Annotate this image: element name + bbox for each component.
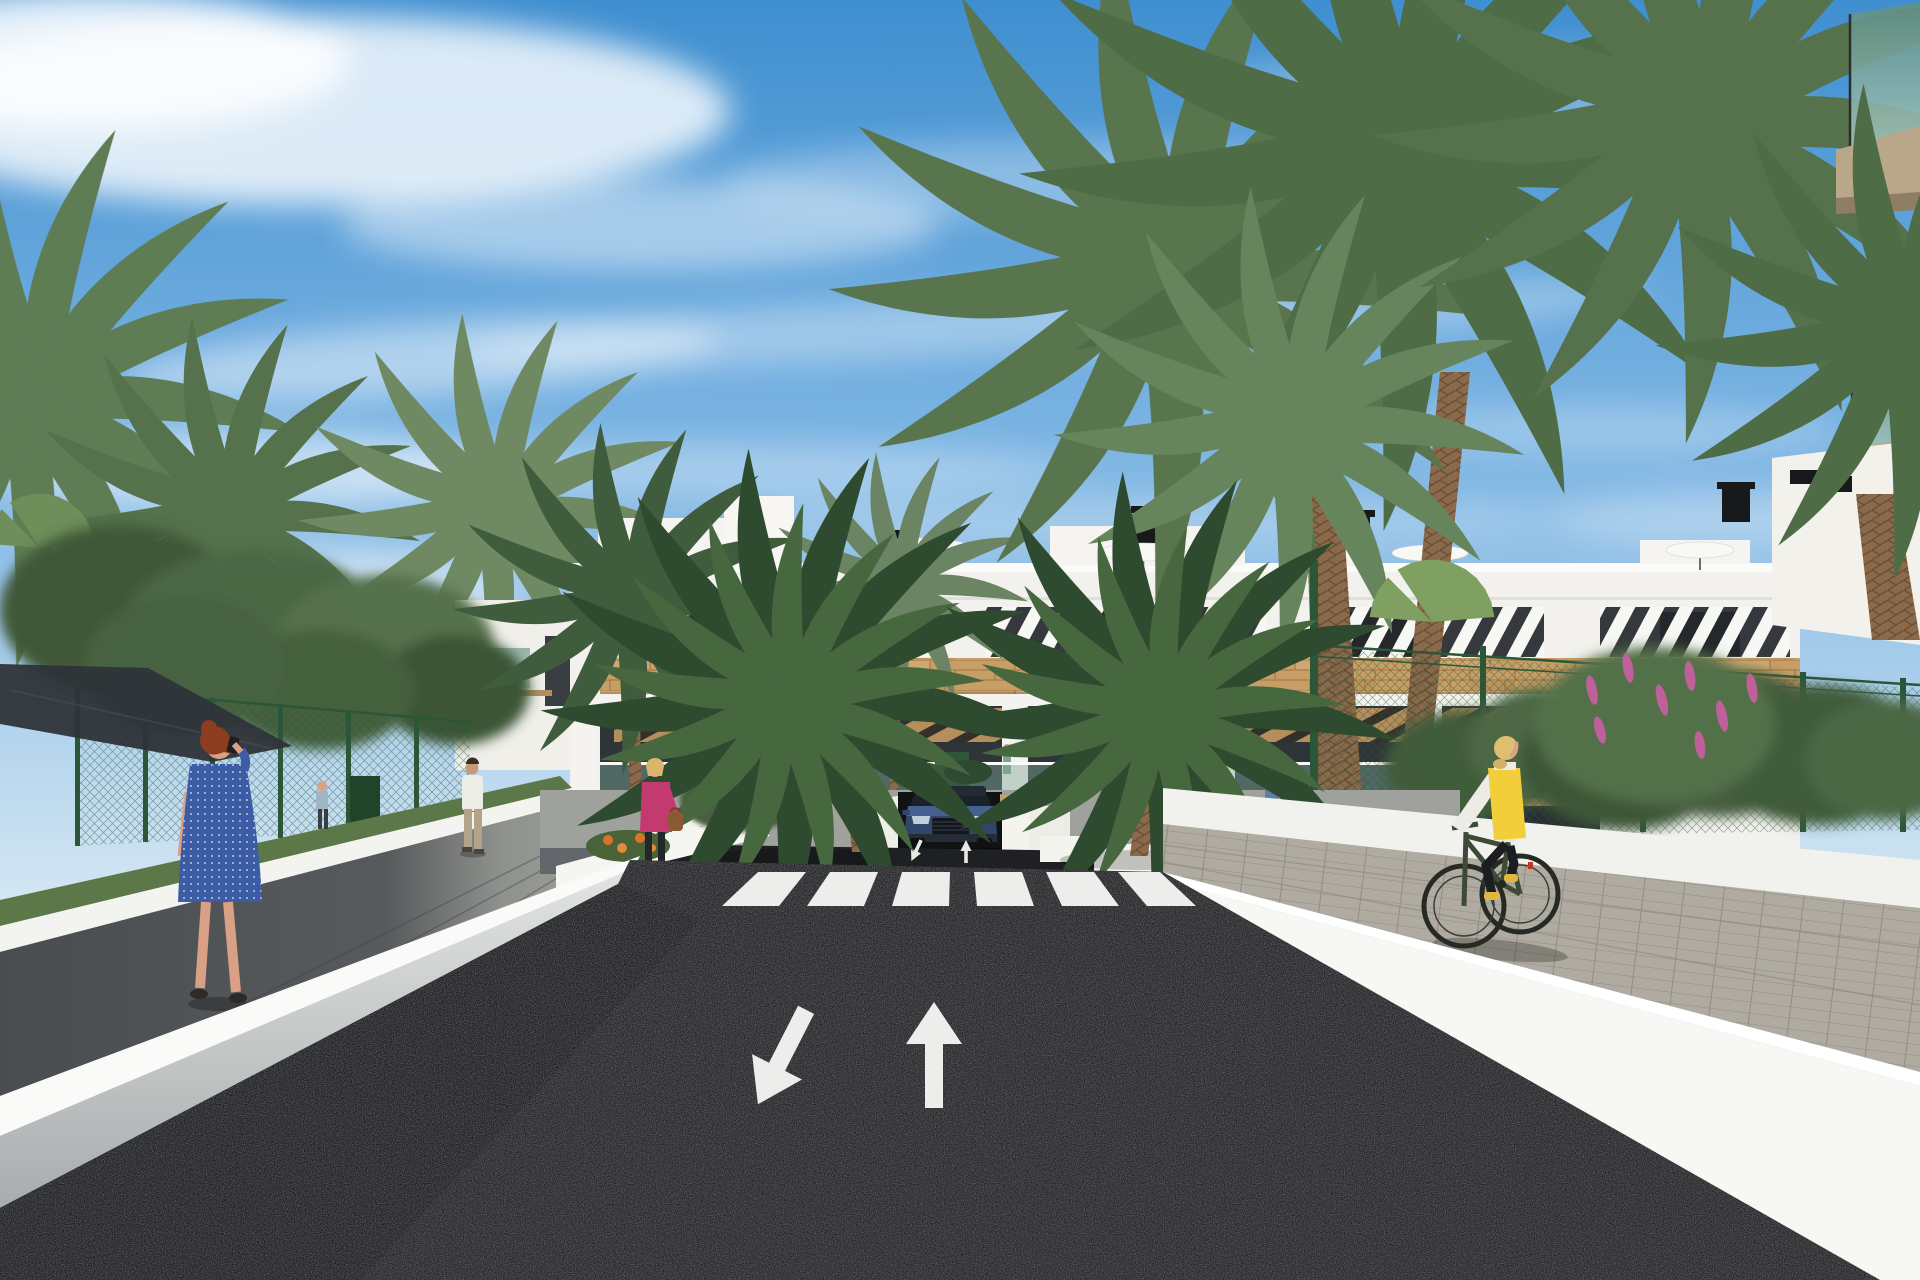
render-image xyxy=(0,0,1920,1280)
